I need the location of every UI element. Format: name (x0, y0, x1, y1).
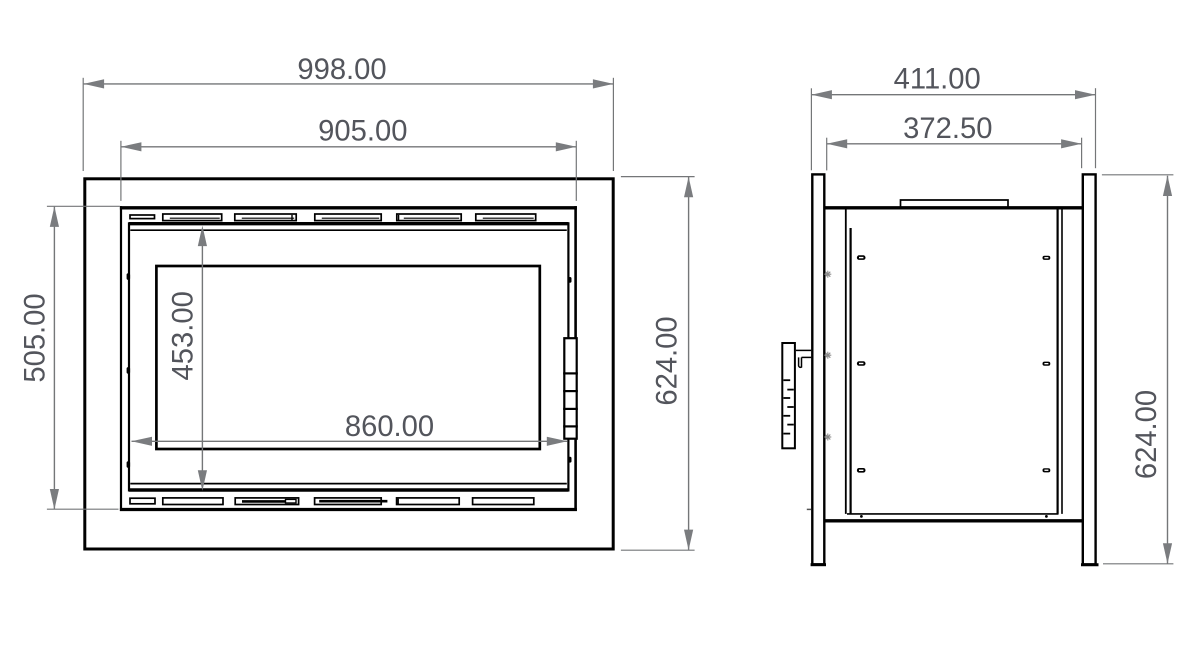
svg-text:505.00: 505.00 (20, 293, 52, 382)
svg-text:372.50: 372.50 (903, 113, 992, 145)
svg-text:860.00: 860.00 (345, 411, 434, 443)
svg-text:624.00: 624.00 (1131, 390, 1163, 479)
svg-text:453.00: 453.00 (167, 291, 199, 380)
svg-text:998.00: 998.00 (297, 54, 386, 86)
svg-text:411.00: 411.00 (894, 63, 981, 95)
svg-text:905.00: 905.00 (318, 116, 407, 148)
svg-text:624.00: 624.00 (652, 316, 684, 405)
